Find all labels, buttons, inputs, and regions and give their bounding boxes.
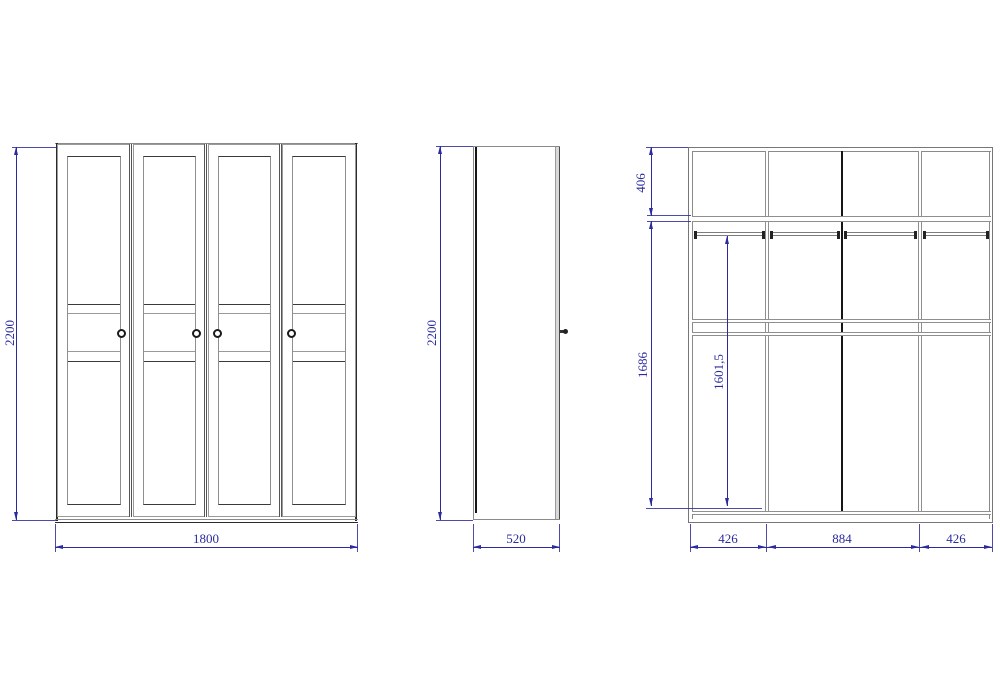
interior-middle-shelf-lower — [692, 332, 991, 336]
dim-top-section-label: 406 — [634, 148, 648, 218]
dim-front-width-line — [55, 547, 358, 548]
door-2-upper-rail — [144, 304, 195, 314]
dim-rail-height-label: 1601,5 — [712, 337, 726, 407]
door-3-panel — [218, 156, 271, 505]
door-2-lower-rail — [144, 351, 195, 362]
rail-end-bracket — [694, 231, 697, 239]
ext-line — [12, 147, 56, 148]
hanging-rail — [770, 232, 840, 236]
rail-end-bracket — [914, 231, 917, 239]
side-door-knob-icon — [563, 329, 568, 334]
arrowhead — [473, 545, 481, 549]
arrowhead — [690, 545, 698, 549]
dim-top-section-line — [651, 147, 652, 216]
dim-side-height-line — [440, 146, 441, 520]
door-4-lower-rail — [293, 351, 345, 362]
hanging-rail — [694, 232, 765, 236]
ext-line — [12, 520, 56, 521]
side-front-edge-band — [555, 147, 560, 519]
arrowhead — [768, 545, 776, 549]
door-knob-icon — [117, 329, 126, 338]
door-4-upper-rail — [293, 304, 345, 314]
rail-end-bracket — [762, 231, 765, 239]
door-knob-icon — [192, 329, 201, 338]
dim-bay-left-line — [690, 547, 766, 548]
ext-line — [436, 520, 473, 521]
front-view — [55, 143, 358, 523]
dim-side-height-label: 2200 — [425, 298, 439, 368]
arrowhead — [55, 545, 63, 549]
dim-bay-right-label: 426 — [926, 532, 986, 546]
wardrobe-door-3 — [208, 144, 281, 517]
door-gap — [204, 144, 207, 517]
arrowhead — [725, 236, 729, 244]
dim-bay-right-line — [919, 547, 992, 548]
dim-bay-middle-label: 884 — [812, 532, 872, 546]
arrowhead — [649, 208, 653, 216]
arrowhead — [350, 545, 358, 549]
dim-side-depth-line — [473, 547, 560, 548]
dim-bay-middle-line — [766, 547, 919, 548]
hanging-rail — [844, 232, 917, 236]
rail-end-bracket — [986, 231, 989, 239]
wardrobe-door-1 — [57, 144, 131, 517]
side-back-panel-line — [475, 147, 477, 513]
ext-line — [646, 508, 762, 509]
dim-rail-height-line — [727, 236, 728, 506]
wardrobe-door-2 — [133, 144, 206, 517]
hanging-rail — [923, 232, 989, 236]
interior-top-shelf — [692, 216, 991, 222]
rail-end-bracket — [844, 231, 847, 239]
dim-front-height-label: 2200 — [3, 298, 17, 368]
arrowhead — [725, 498, 729, 506]
arrowhead — [438, 512, 442, 520]
arrowhead — [758, 545, 766, 549]
technical-drawing-canvas: 2200 1800 2200 520 406 1686 1601,5 426 — [0, 0, 1000, 700]
door-1-upper-rail — [68, 304, 120, 314]
rail-end-bracket — [837, 231, 840, 239]
dim-interior-height-line — [651, 221, 652, 506]
rail-end-bracket — [923, 231, 926, 239]
front-bottom-edge — [55, 522, 358, 523]
ext-line — [647, 221, 691, 222]
dim-bay-left-label: 426 — [698, 532, 758, 546]
door-gap — [279, 144, 282, 517]
ext-line — [992, 524, 993, 552]
door-2-panel — [143, 156, 196, 505]
dim-interior-height-label: 1686 — [636, 330, 650, 400]
dim-side-depth-label: 520 — [486, 532, 546, 546]
rail-end-bracket — [770, 231, 773, 239]
interior-middle-shelf-upper — [692, 319, 991, 323]
ext-line — [647, 215, 691, 216]
door-3-upper-rail — [219, 304, 270, 314]
door-4-panel — [292, 156, 346, 505]
arrowhead — [552, 545, 560, 549]
door-knob-icon — [213, 329, 222, 338]
dim-front-width-label: 1800 — [176, 532, 236, 546]
arrowhead — [649, 221, 653, 229]
door-3-lower-rail — [219, 351, 270, 362]
arrowhead — [438, 146, 442, 154]
arrowhead — [14, 147, 18, 155]
door-gap — [129, 144, 132, 517]
arrowhead — [649, 498, 653, 506]
front-base-line — [55, 519, 358, 520]
side-view — [473, 146, 560, 520]
arrowhead — [14, 512, 18, 520]
door-knob-icon — [287, 329, 296, 338]
wardrobe-door-4 — [282, 144, 356, 517]
interior-view — [688, 147, 993, 523]
arrowhead — [649, 147, 653, 155]
door-1-lower-rail — [68, 351, 120, 362]
interior-floor-panel — [692, 511, 991, 515]
door-1-panel — [67, 156, 121, 505]
arrowhead — [911, 545, 919, 549]
